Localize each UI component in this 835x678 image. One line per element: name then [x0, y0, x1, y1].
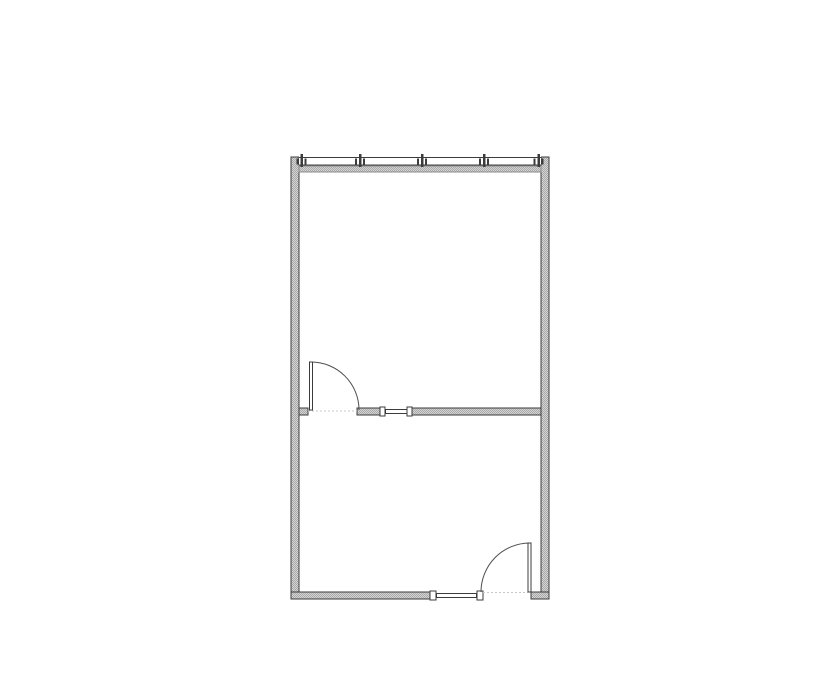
middle-wall-segment-a	[357, 408, 380, 415]
bottom-wall-window-glazing	[437, 594, 477, 598]
mullion-stop	[297, 159, 299, 165]
floor-plan-svg	[0, 0, 835, 678]
mullion-stop	[487, 159, 489, 165]
floor-plan-canvas	[0, 0, 835, 678]
mullion-stop	[417, 159, 419, 165]
mullion-stop	[534, 159, 536, 165]
mullion-stop	[541, 159, 543, 165]
curtain-wall-mullion	[300, 154, 303, 167]
curtain-wall-mullion	[537, 154, 540, 167]
bottom-wall-left	[291, 592, 430, 599]
middle-door-swing-arc	[311, 362, 359, 410]
left-wall	[291, 157, 299, 599]
curtain-wall-sill	[299, 166, 541, 172]
mullion-stop	[355, 159, 357, 165]
bottom-door-leaf	[528, 543, 531, 592]
middle-door-leaf	[310, 362, 313, 410]
middle-wall-window-frame	[407, 407, 412, 416]
bottom-wall-right-stub	[531, 592, 549, 599]
mullion-stop	[425, 159, 427, 165]
bottom-wall-window-frame	[430, 591, 436, 600]
curtain-wall-mullion	[483, 154, 486, 167]
middle-wall-window-frame	[380, 407, 385, 416]
mullion-stop	[363, 159, 365, 165]
middle-wall-window-glazing	[386, 410, 408, 414]
curtain-wall-mullion	[359, 154, 362, 167]
middle-wall-stub-left	[299, 408, 308, 415]
curtain-wall-mullion	[421, 154, 424, 167]
right-wall	[541, 157, 549, 599]
mullion-stop	[479, 159, 481, 165]
mullion-stop	[304, 159, 306, 165]
bottom-wall-window-frame	[477, 591, 483, 600]
curtain-wall-backing	[299, 154, 541, 166]
bottom-door-swing-arc	[481, 543, 530, 592]
middle-wall-segment-b	[412, 408, 541, 415]
